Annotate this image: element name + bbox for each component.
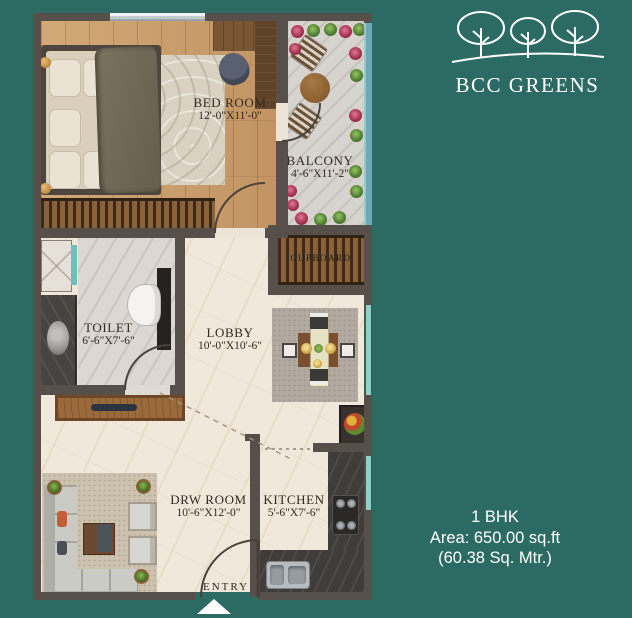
bedroom-label: BED ROOM 12'-0"X11'-0" [160,95,300,124]
brochure-page: BED ROOM 12'-0"X11'-0" BALCONY 4'-6"X11'… [0,0,632,618]
unit-type: 1 BHK [385,507,605,528]
room-dims: 6'-6"X7'-6" [61,335,156,349]
room-name: BED ROOM [160,95,300,110]
unit-info: 1 BHK Area: 650.00 sq.ft (60.38 Sq. Mtr.… [385,507,605,569]
brand-logo: BCC GREENS [430,8,625,96]
toilet-label: TOILET 6'-6"X7'-6" [61,320,156,349]
room-dims: 10'-0"X10'-6" [175,340,285,354]
room-name: KITCHEN [248,492,340,507]
unit-area-metric: (60.38 Sq. Mtr.) [385,548,605,569]
room-dims: 4'-6"X11'-2" [265,168,375,182]
trees-icon [448,8,608,66]
balcony-label: BALCONY 4'-6"X11'-2" [265,153,375,182]
room-name: BALCONY [265,153,375,168]
cupboard-label: CUPBOARD [278,253,364,263]
room-name: TOILET [61,320,156,335]
room-name: LOBBY [175,325,285,340]
floor-plan: BED ROOM 12'-0"X11'-0" BALCONY 4'-6"X11'… [33,13,372,600]
room-dims: 5'-6"X7'-6" [248,507,340,521]
lobby-label: LOBBY 10'-0"X10'-6" [175,325,285,354]
room-dims: 12'-0"X11'-0" [160,110,300,124]
unit-area: Area: 650.00 sq.ft [385,528,605,549]
entry-arrow-icon [197,599,231,614]
kitchen-label: KITCHEN 5'-6"X7'-6" [248,492,340,521]
brand-name: BCC GREENS [430,73,625,98]
entry-label: ENTRY [193,581,259,593]
